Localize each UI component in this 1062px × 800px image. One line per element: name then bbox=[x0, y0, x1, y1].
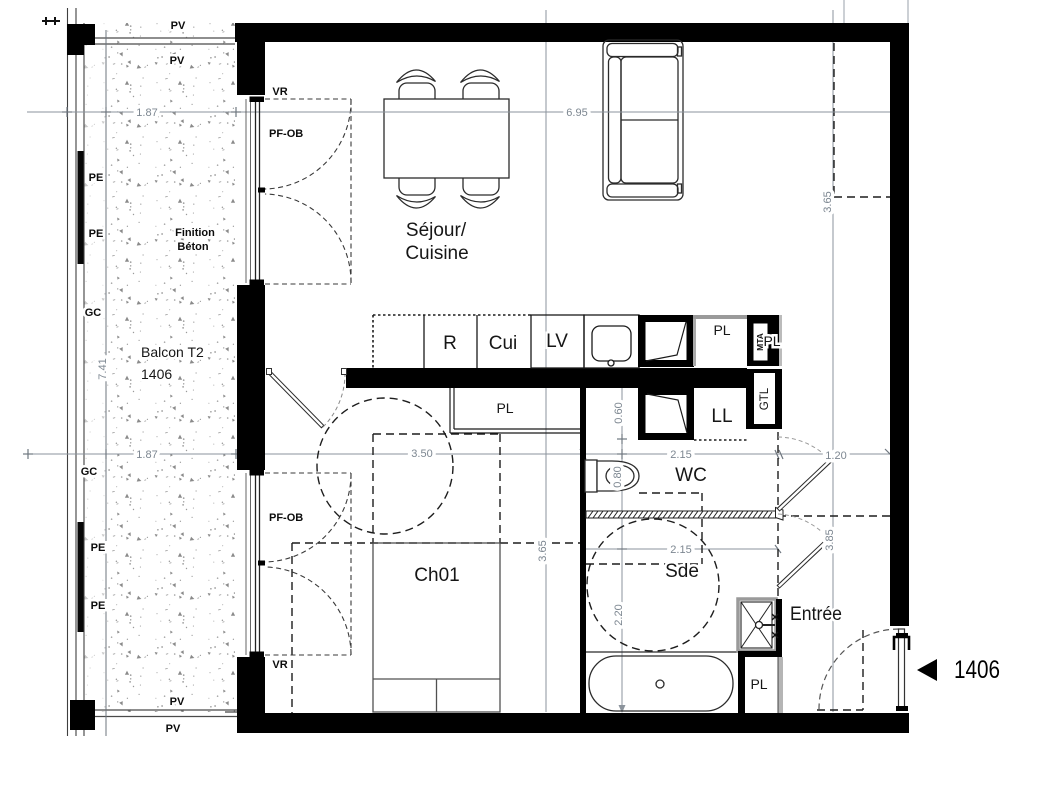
svg-text:1.87: 1.87 bbox=[136, 107, 157, 119]
svg-text:PF-OB: PF-OB bbox=[269, 512, 303, 524]
svg-text:2.20: 2.20 bbox=[613, 604, 625, 625]
svg-text:LV: LV bbox=[546, 331, 568, 352]
svg-text:1406: 1406 bbox=[954, 656, 1000, 684]
svg-text:GC: GC bbox=[81, 466, 98, 478]
svg-text:PE: PE bbox=[89, 228, 104, 240]
svg-text:Séjour/: Séjour/ bbox=[406, 220, 467, 241]
svg-text:PF-OB: PF-OB bbox=[269, 128, 303, 140]
svg-text:Cuisine: Cuisine bbox=[405, 243, 468, 264]
svg-text:PV: PV bbox=[171, 20, 186, 32]
svg-text:Balcon T2: Balcon T2 bbox=[141, 344, 204, 360]
svg-text:VR: VR bbox=[272, 659, 287, 671]
svg-text:R: R bbox=[443, 333, 457, 354]
svg-text:2.15: 2.15 bbox=[670, 544, 691, 556]
svg-text:3.65: 3.65 bbox=[537, 540, 549, 561]
svg-text:Finition: Finition bbox=[175, 227, 215, 239]
svg-text:PL: PL bbox=[763, 333, 780, 349]
svg-text:PL: PL bbox=[496, 400, 513, 416]
svg-text:1406: 1406 bbox=[141, 366, 172, 382]
svg-text:6.95: 6.95 bbox=[566, 107, 587, 119]
svg-text:PE: PE bbox=[91, 600, 106, 612]
svg-text:MTA: MTA bbox=[755, 333, 765, 351]
svg-text:1.20: 1.20 bbox=[825, 450, 846, 462]
svg-text:Entrée: Entrée bbox=[790, 604, 842, 625]
svg-text:0.60: 0.60 bbox=[613, 402, 625, 423]
svg-text:7.41: 7.41 bbox=[97, 358, 109, 379]
svg-text:1.87: 1.87 bbox=[136, 449, 157, 461]
svg-text:0.80: 0.80 bbox=[612, 466, 624, 487]
svg-text:Ch01: Ch01 bbox=[414, 565, 459, 586]
svg-text:VR: VR bbox=[272, 86, 287, 98]
svg-text:PV: PV bbox=[170, 55, 185, 67]
svg-text:GTL: GTL bbox=[759, 387, 771, 410]
svg-text:PE: PE bbox=[91, 542, 106, 554]
svg-text:WC: WC bbox=[675, 465, 707, 486]
svg-text:PE: PE bbox=[89, 172, 104, 184]
svg-text:PL: PL bbox=[750, 676, 767, 692]
svg-text:Sde: Sde bbox=[665, 561, 699, 582]
svg-text:3.65: 3.65 bbox=[822, 191, 834, 212]
svg-text:3.50: 3.50 bbox=[411, 448, 432, 460]
svg-text:Cui: Cui bbox=[489, 333, 518, 354]
svg-text:PL: PL bbox=[713, 322, 730, 338]
svg-text:PV: PV bbox=[170, 696, 185, 708]
svg-text:LL: LL bbox=[711, 406, 732, 427]
svg-text:2.15: 2.15 bbox=[670, 449, 691, 461]
svg-text:PV: PV bbox=[166, 723, 181, 735]
svg-text:GC: GC bbox=[85, 307, 102, 319]
svg-text:3.85: 3.85 bbox=[824, 529, 836, 550]
svg-text:Béton: Béton bbox=[177, 241, 208, 253]
